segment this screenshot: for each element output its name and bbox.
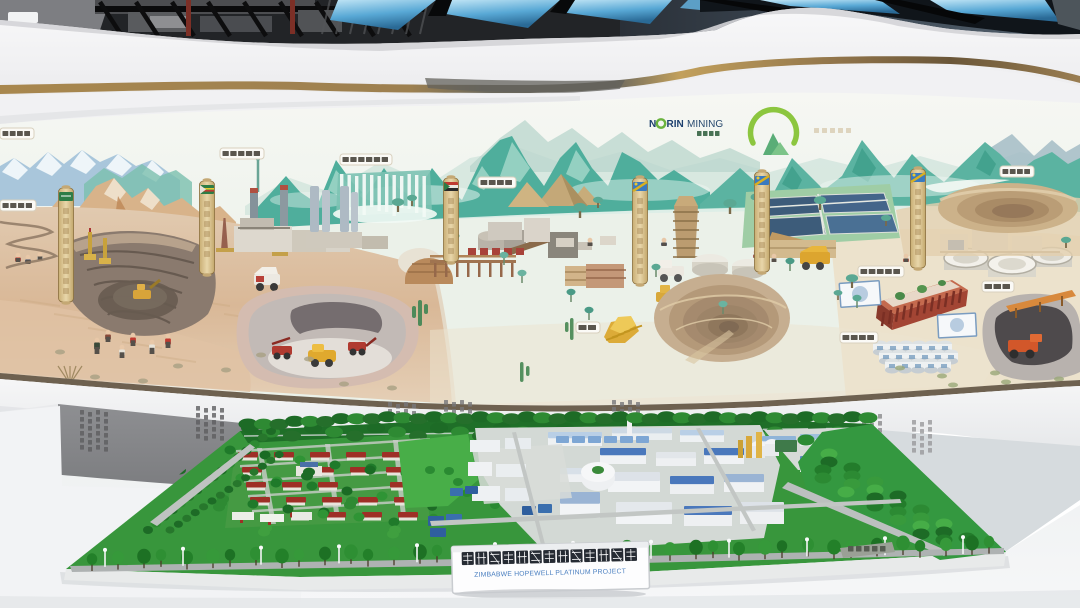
svg-text:RIN: RIN [667, 119, 684, 130]
svg-text:MINING: MINING [687, 119, 723, 130]
svg-text:N: N [649, 119, 656, 130]
